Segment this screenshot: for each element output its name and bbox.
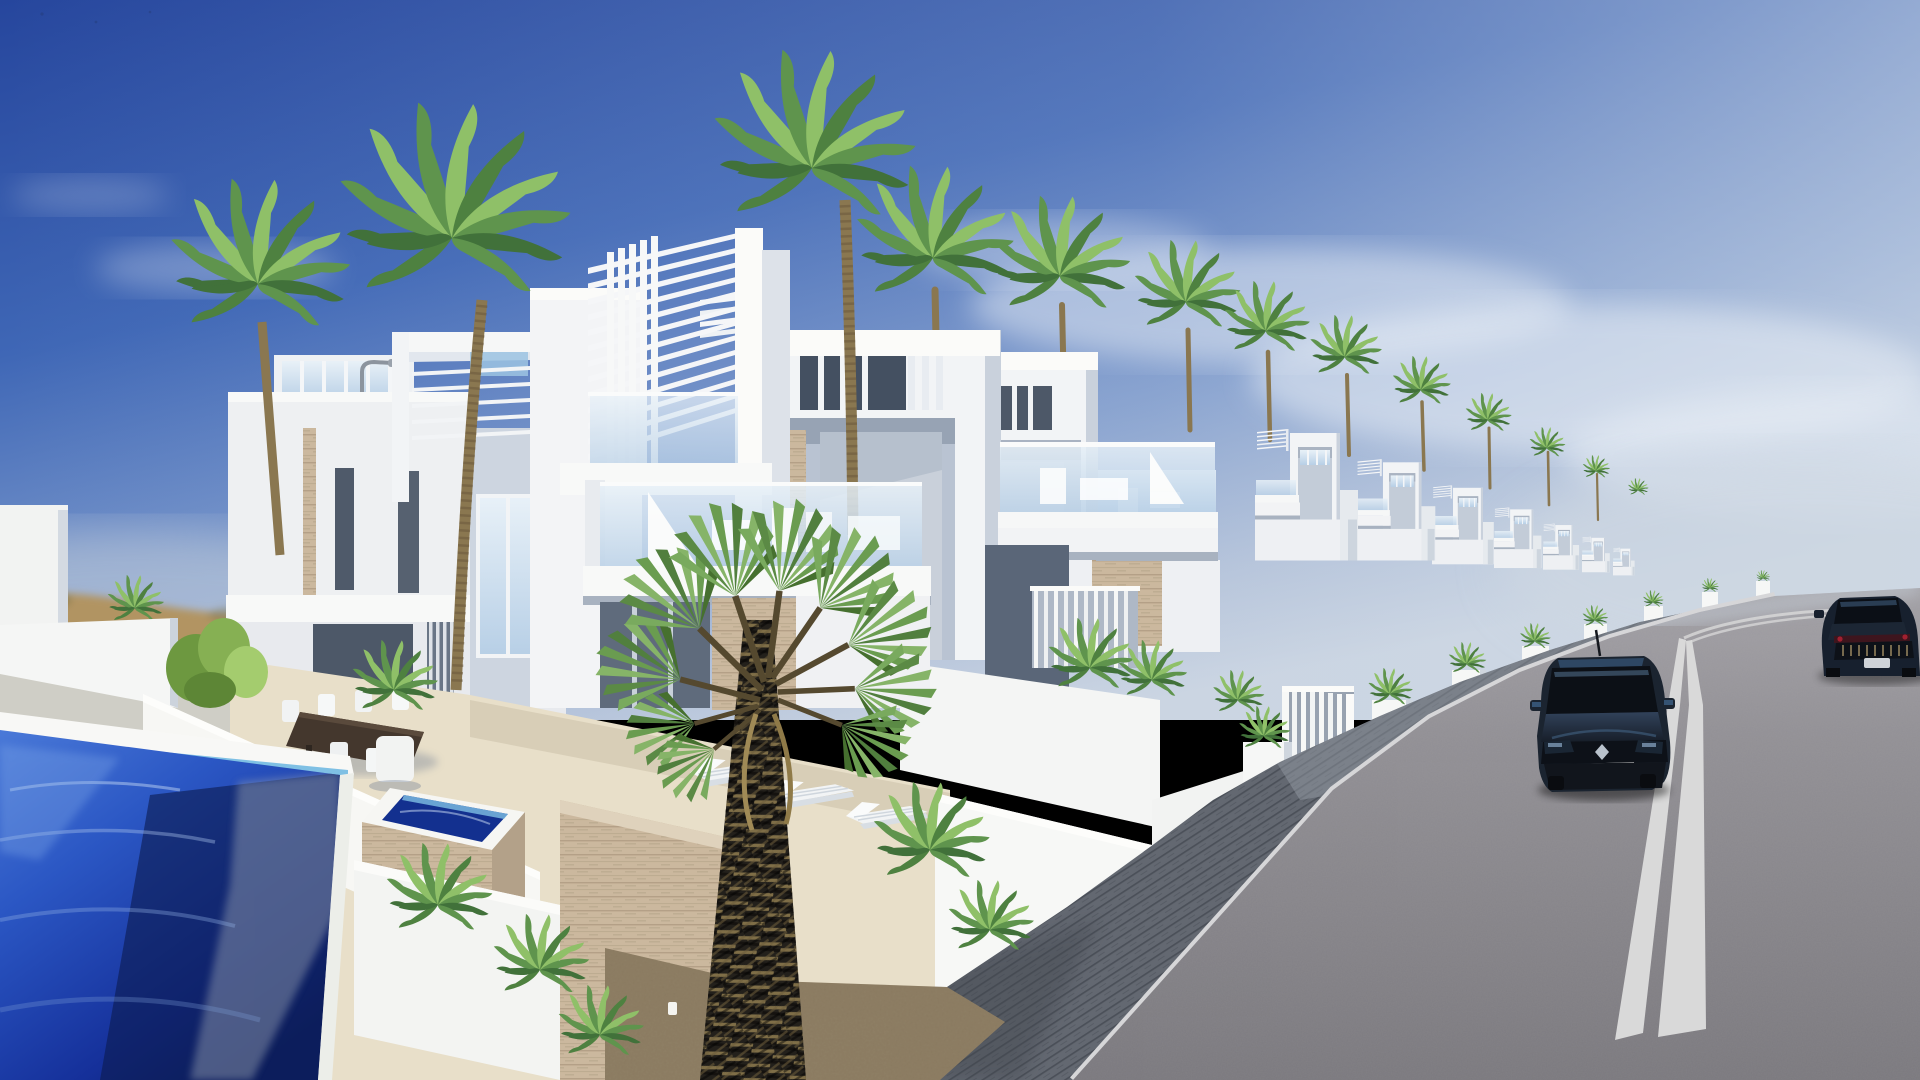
narrow-window <box>335 468 354 590</box>
balcony-right <box>998 442 1218 560</box>
upper-glass <box>590 395 738 467</box>
grille-slats <box>1842 645 1908 656</box>
balcony-chair <box>1040 468 1066 504</box>
ground-light <box>668 1002 677 1015</box>
mirror-left <box>1814 610 1824 618</box>
wheel <box>1548 776 1564 790</box>
dining-chair <box>318 694 335 716</box>
villa-street-render: Row of modern white two-storey villas wi… <box>0 0 1920 1080</box>
balcony-table <box>1080 478 1128 500</box>
pool <box>0 712 354 1080</box>
render-viewport: Row of modern white two-storey villas wi… <box>0 0 1920 1080</box>
wheel <box>1902 668 1916 677</box>
tower-top-band <box>770 330 1000 356</box>
plant-pot <box>376 736 414 782</box>
dining-chair <box>282 700 299 722</box>
wheel <box>1640 774 1656 788</box>
license-plate <box>1864 658 1890 668</box>
hood <box>1541 712 1664 742</box>
car-sports-coupe <box>1814 596 1920 685</box>
wheel <box>1826 668 1840 677</box>
travertine-pilaster <box>303 428 316 598</box>
